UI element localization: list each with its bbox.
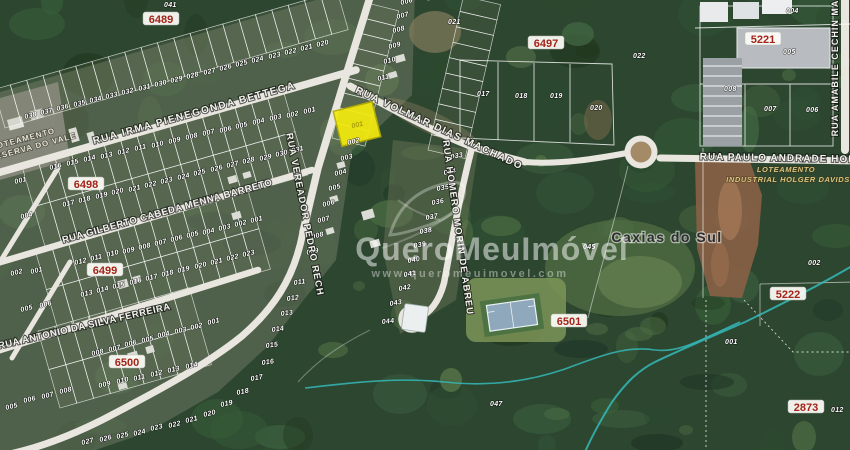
lot-number-label: 017 — [477, 91, 490, 98]
lot-number-label: 019 — [550, 93, 563, 100]
block-number-badge: 6497 — [528, 36, 564, 50]
loteamento-right-line2: INDUSTRIAL HOLGER DAVIDS — [726, 175, 850, 184]
warehouse-building — [703, 58, 742, 146]
cul-de-sac-building — [401, 303, 428, 332]
block-number-badge: 5221 — [745, 32, 781, 46]
block-number-badge: 6500 — [109, 355, 145, 369]
dirt-streak — [711, 243, 729, 287]
lot-number-label: 004 — [786, 8, 799, 15]
loteamento-right-line1: LOTEAMENTO — [757, 165, 815, 174]
lot-number-label: 002 — [808, 260, 821, 267]
block-number-badge: 6489 — [143, 12, 179, 26]
cul-de-sac-loop — [628, 139, 655, 166]
block-number-badge: 6498 — [68, 177, 104, 191]
block-number-text: 6500 — [115, 357, 139, 369]
block-number-badge: 2873 — [788, 400, 824, 414]
block-number-badge: 5222 — [770, 287, 806, 301]
map-viewport[interactable]: 001 041038037036035034033032031030029028… — [0, 0, 850, 450]
lot-number-label: 020 — [590, 105, 603, 112]
block-number-text: 6499 — [93, 265, 117, 277]
lot-number-label: 001 — [725, 339, 738, 346]
block-number-text: 6489 — [149, 14, 173, 26]
block-number-text: 6498 — [74, 179, 98, 191]
lot-number-label: 005 — [783, 49, 796, 56]
block-number-badge: 6501 — [551, 314, 587, 328]
street-name-label: RUA AMABILE CECHIN MA — [830, 0, 840, 136]
watermark-brand: QueroMeuImóvel — [355, 231, 629, 267]
lot-number-label: 021 — [448, 19, 461, 26]
lot-number-label: 008 — [724, 86, 737, 93]
building — [733, 2, 759, 19]
block-number-text: 5222 — [776, 289, 800, 301]
block-number-text: 6497 — [534, 38, 558, 50]
block-number-badge: 6499 — [87, 263, 123, 277]
building — [700, 2, 728, 22]
block-number-text: 2873 — [794, 402, 818, 414]
satellite-map[interactable]: 001 041038037036035034033032031030029028… — [0, 0, 850, 450]
lot-number-label: 007 — [764, 106, 777, 113]
watermark-url: www.queromeuimovel.com — [370, 268, 568, 280]
lot-number-label: 047 — [490, 401, 503, 408]
lot-number-label: 018 — [515, 93, 528, 100]
lot-number-label: 022 — [633, 53, 646, 60]
lot-number-label: 041 — [164, 2, 177, 9]
block-number-text: 5221 — [751, 34, 775, 46]
lot-number-label: 012 — [831, 407, 844, 414]
lot-number-label: 006 — [806, 107, 819, 114]
lot-number-label: 044 — [381, 318, 394, 326]
block-number-text: 6501 — [557, 316, 581, 328]
